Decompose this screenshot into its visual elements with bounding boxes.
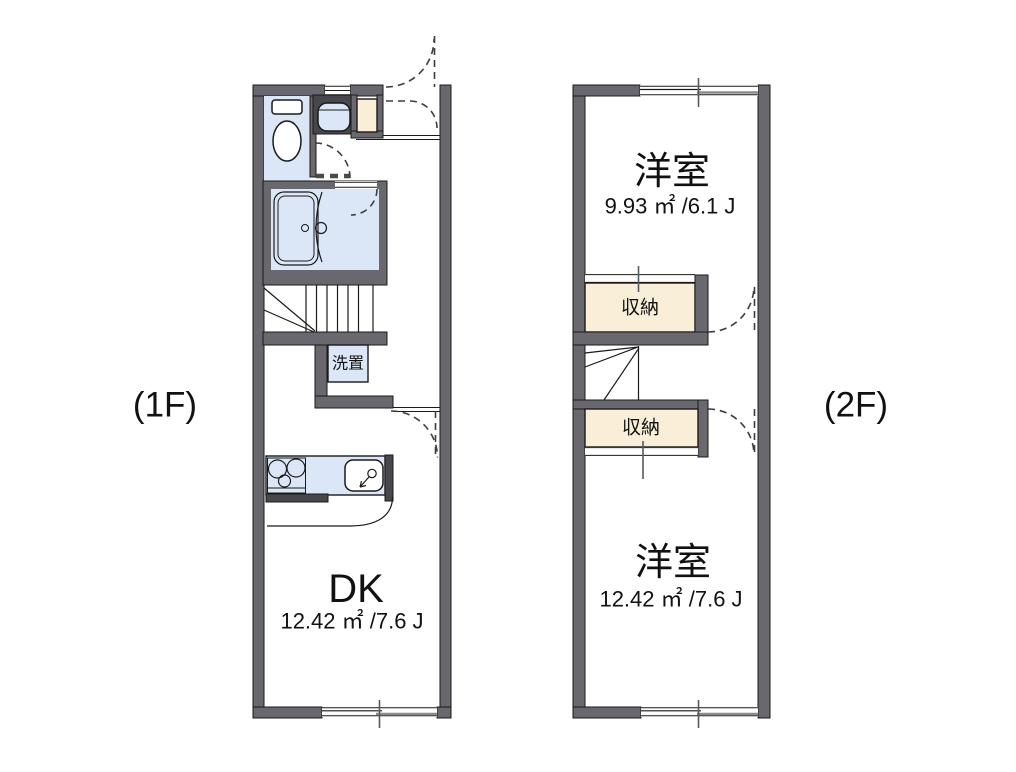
room-bottom-name: 洋室 bbox=[635, 542, 711, 584]
floor2-caption: (2F) bbox=[824, 386, 888, 425]
window-top-1f bbox=[325, 85, 350, 96]
closet-top: 収納 bbox=[573, 266, 708, 345]
closet-door-band bbox=[585, 274, 695, 283]
wall-right-2f bbox=[758, 85, 770, 718]
laundry-label: 洗置 bbox=[332, 355, 364, 373]
closet-door-band bbox=[585, 447, 698, 456]
laundry-space: 洗置 bbox=[315, 345, 393, 408]
room-top-door-arc bbox=[708, 286, 754, 332]
entrance-storage bbox=[351, 95, 383, 138]
shoe-cabinet bbox=[357, 99, 377, 132]
wall-below-stairs bbox=[263, 332, 387, 345]
stairs-1f bbox=[263, 285, 387, 345]
floor1-caption: (1F) bbox=[133, 386, 197, 425]
toilet-bowl-icon bbox=[273, 121, 301, 161]
room-bottom-door-arc bbox=[708, 409, 754, 455]
washroom-door-arc bbox=[315, 143, 350, 178]
dk-room-area: 12.42 ㎡ /7.6 J bbox=[280, 609, 423, 634]
bathroom-floor bbox=[271, 189, 379, 270]
stair-treads bbox=[306, 285, 373, 332]
kitchen bbox=[266, 455, 393, 526]
closet-bottom-label: 収納 bbox=[622, 417, 660, 439]
dk-room-name: DK bbox=[328, 567, 384, 611]
stair-winders bbox=[264, 288, 315, 332]
counter-end-wall bbox=[385, 455, 393, 501]
wall-top-left-1f bbox=[253, 85, 325, 96]
wall-top-mid-1f bbox=[350, 85, 383, 96]
room-top-area: 9.93 ㎡ /6.1 J bbox=[605, 194, 736, 219]
counter-base bbox=[266, 494, 328, 502]
wall-laundry-bottom bbox=[315, 396, 393, 408]
closet-bottom: 収納 bbox=[585, 400, 708, 479]
toilet-room bbox=[264, 96, 316, 181]
room-bottom-area: 12.42 ㎡ /7.6 J bbox=[599, 587, 742, 612]
wall-bottom-2f bbox=[573, 707, 641, 718]
bathroom bbox=[263, 181, 387, 285]
washroom-door bbox=[315, 143, 350, 178]
washbasin-icon bbox=[318, 103, 350, 131]
toilet-tank-icon bbox=[272, 100, 302, 114]
wall-closet-top-right bbox=[695, 275, 708, 333]
wall-top-2f bbox=[573, 85, 640, 96]
room-bottom-door bbox=[708, 409, 755, 455]
entrance-inner-door-arc bbox=[410, 101, 437, 128]
stair-winders bbox=[585, 347, 639, 400]
dk-door bbox=[391, 408, 440, 459]
room-top-name: 洋室 bbox=[634, 151, 710, 193]
window-top-2f bbox=[640, 78, 758, 107]
wall-closet-bottom-right bbox=[698, 400, 708, 457]
floorplan-2f: 洋室 9.93 ㎡ /6.1 J 収納 bbox=[573, 78, 770, 728]
wall-above-closet-bottom bbox=[573, 400, 708, 409]
wall-right-1f bbox=[440, 85, 451, 718]
floorplan-page: 洗置 DK 12.42 ㎡ /7.6 J bbox=[0, 0, 1016, 772]
closet-top-label: 収納 bbox=[621, 297, 659, 319]
wall-left-1f bbox=[253, 85, 264, 718]
stairs-2f bbox=[573, 346, 708, 409]
entrance-door-arc bbox=[386, 39, 434, 87]
window-bottom-2f bbox=[641, 700, 758, 728]
wall-bottom-left-1f bbox=[253, 707, 322, 718]
dk-door-frame bbox=[393, 408, 440, 412]
room-top-door bbox=[708, 286, 755, 332]
washbasin-unit bbox=[313, 95, 355, 134]
wall-bottom-right-1f bbox=[437, 707, 451, 718]
floorplan-canvas: 洗置 DK 12.42 ㎡ /7.6 J bbox=[0, 0, 1016, 772]
window-bottom-1f bbox=[322, 700, 437, 728]
wall-below-closet-top bbox=[573, 332, 708, 345]
dk-door-arc bbox=[391, 411, 438, 458]
floorplan-1f: 洗置 DK 12.42 ㎡ /7.6 J bbox=[253, 36, 451, 728]
